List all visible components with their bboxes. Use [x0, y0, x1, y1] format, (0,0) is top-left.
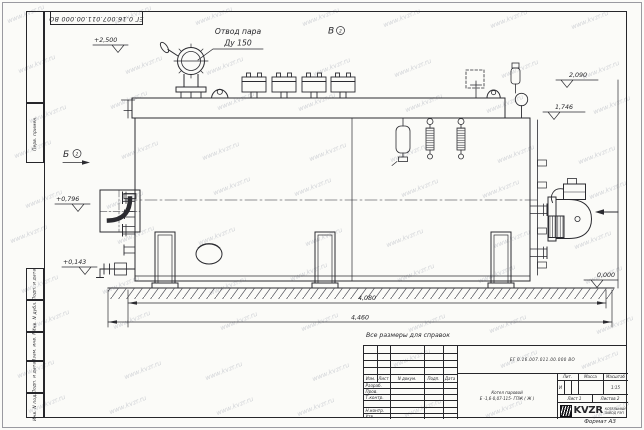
- tb-col-ndoc: N докум.: [390, 374, 424, 382]
- tb-product-name: Котел паровой Е -1,6-0,07-115- ГПЖ ( Ж ): [457, 373, 557, 419]
- logo-company-line2: ЗАВОД РЭП: [605, 411, 626, 415]
- margin-cell-vzam-inv: Взам. инв. N: [26, 332, 44, 361]
- margin-label: Инв. N подл.: [33, 390, 38, 421]
- spring-coil-icon: [560, 405, 572, 417]
- reference-note: Все размеры для справок: [366, 332, 450, 339]
- tb-role-utv: Утв.: [364, 413, 390, 419]
- tb-logo: KVZR КОТЕЛЬНЫЙ ЗАВОД РЭП: [557, 402, 628, 419]
- tb-scale-header: Масштаб: [603, 373, 628, 380]
- margin-cell-empty: [26, 11, 44, 103]
- margin-cell-inv-dubl: Инв. N дубл.: [26, 300, 44, 332]
- margin-cell-podp-data-2: Подп. и дата: [26, 361, 44, 393]
- tb-col-data: Дата: [443, 374, 457, 382]
- tb-sheets: Листов 2: [592, 394, 628, 402]
- tb-col-izm: Изм.: [364, 374, 377, 382]
- tb-sheet: Лист 1: [557, 394, 592, 402]
- product-name-line2: Е -1,6-0,07-115- ГПЖ ( Ж ): [480, 396, 535, 402]
- tb-col-list: Лист: [377, 374, 390, 382]
- margin-label: Инв. N дубл.: [33, 301, 38, 332]
- margin-label: Взам. инв. N: [33, 331, 38, 361]
- logo-brand: KVZR: [574, 405, 603, 416]
- logo-company: КОТЕЛЬНЫЙ ЗАВОД РЭП: [605, 407, 626, 415]
- margin-cell-podp-data-1: Подп. и дата: [26, 268, 44, 300]
- tb-col-podp: Подп.: [424, 374, 443, 382]
- margin-label: Перв. примен.: [33, 116, 38, 151]
- margin-label: Подп. и дата: [33, 361, 38, 393]
- drawing-sheet: { "watermark": { "text": "www.kvzr.ru" }…: [0, 0, 644, 430]
- margin-label: Подп. и дата: [33, 268, 38, 300]
- margin-cell-perv-primen: Перв. примен.: [26, 103, 44, 163]
- tb-doc-number: ЕГ 0.16.007.011.00.000 ВО: [457, 346, 628, 373]
- margin-cell-inv-podl: Инв. N подл.: [26, 393, 44, 418]
- top-stamp-box: ЕГ 0.16.007.011.00.000 ВО: [50, 11, 143, 25]
- tb-lit-value: И: [557, 380, 564, 394]
- tb-scale-value: 1:15: [603, 380, 628, 394]
- tb-lit-header: Лит.: [557, 373, 578, 380]
- tb-role-tkontr: Т.контр.: [364, 394, 390, 400]
- format-label: Формат А3: [545, 419, 644, 425]
- top-stamp-number: ЕГ 0.16.007.011.00.000 ВО: [49, 15, 143, 22]
- title-block: Изм. Лист N докум. Подп. Дата Разраб. Пр…: [363, 345, 627, 418]
- tb-mass-header: Масса: [578, 373, 603, 380]
